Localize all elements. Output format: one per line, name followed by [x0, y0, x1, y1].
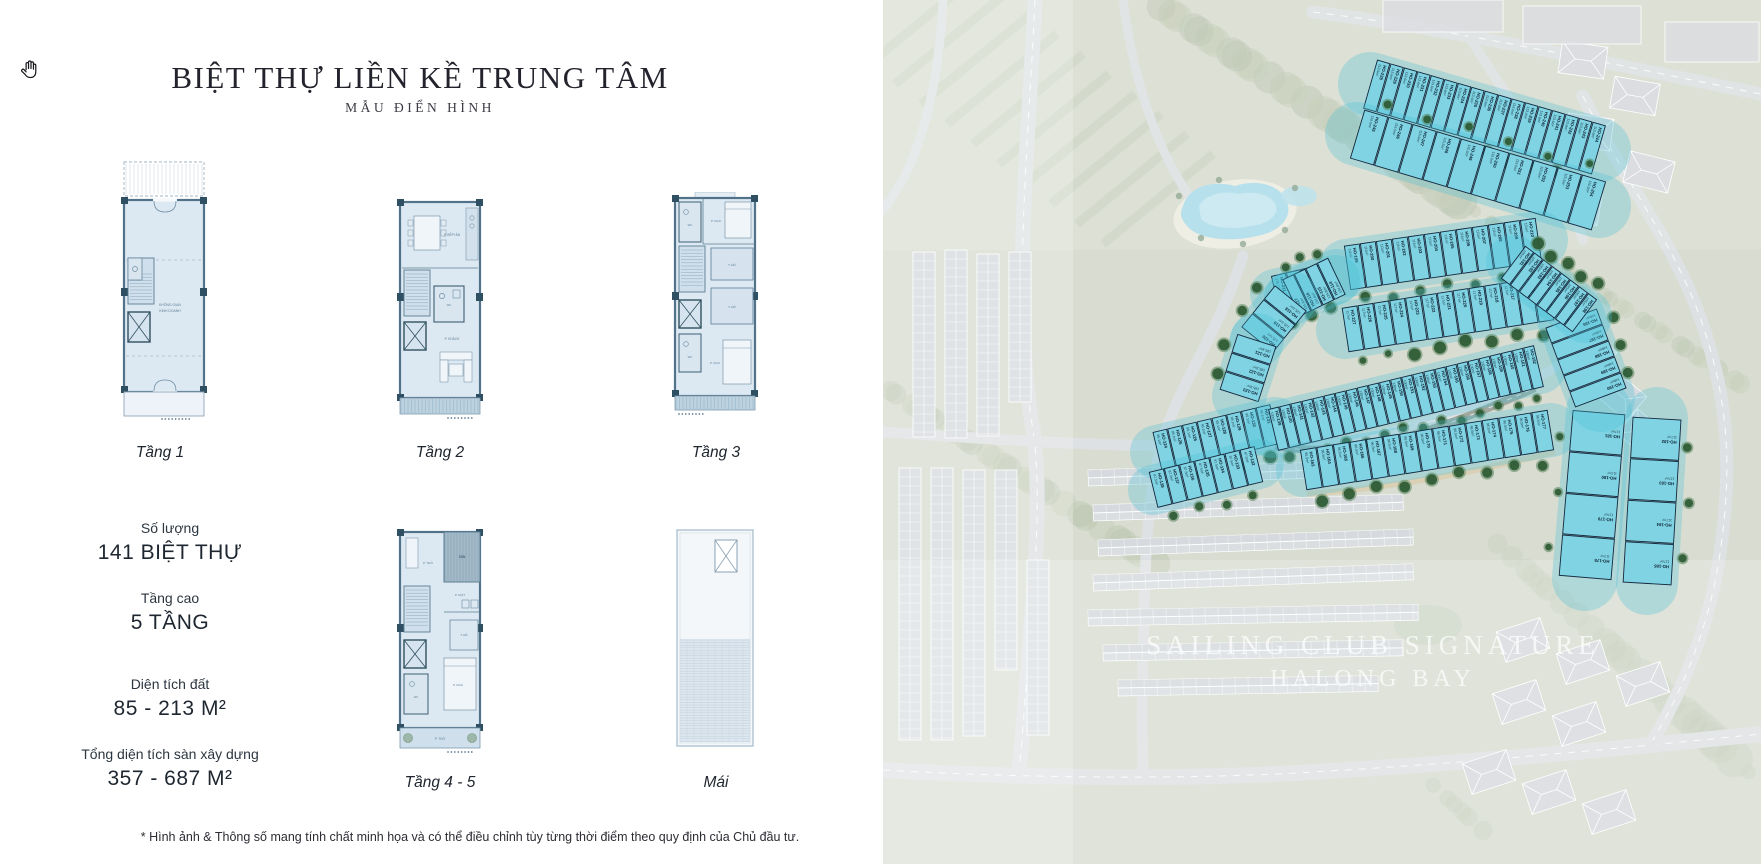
page-subtitle: MẪU ĐIỂN HÌNH — [0, 100, 840, 116]
page-title: BIỆT THỰ LIỀN KỀ TRUNG TÂM — [0, 60, 840, 96]
floor-plan-tang-3: WC P. NGỦ T. ĐỒ T. ĐỒ WC P. NGỦ — [665, 192, 765, 424]
floor-plan-label-tang-1: Tầng 1 — [80, 444, 240, 462]
room-label: P. BẾP+ĂN — [444, 232, 461, 237]
floor-plan-tang-2: P. BẾP+ĂN WC P. KHÁCH — [390, 198, 490, 424]
stat-label: Tầng cao — [0, 590, 340, 606]
stat-label: Số lượng — [0, 520, 340, 536]
map-lot: HO-185117m² — [1623, 542, 1673, 585]
stat-label: Diện tích đất — [0, 676, 340, 692]
stat-label: Tổng diện tích sàn xây dựng — [0, 746, 340, 762]
map-lot: HO-179117m² — [1563, 493, 1618, 538]
svg-text:117m²: 117m² — [1664, 476, 1675, 481]
stat-value: 85 - 213 M² — [0, 697, 340, 721]
svg-text:117m²: 117m² — [1659, 559, 1670, 564]
floor-plan-mai — [665, 524, 765, 762]
svg-text:117m²: 117m² — [1666, 435, 1677, 440]
floor-plan-tang-4-5: SÂN P. THỜ P. GIẶT T. ĐỒ WC P. NGỦ P. TH… — [390, 524, 490, 762]
room-label: P. NGỦ — [710, 360, 720, 365]
watermark-line-1: SAILING CLUB SIGNATURE — [1146, 630, 1600, 660]
floor-plan-tang-1: KHÔNG GIAN KINH DOANH — [114, 160, 214, 452]
map-lot: HO-178117m² — [1559, 535, 1614, 580]
watermark-line-2: HALONG BAY — [1270, 666, 1476, 692]
room-label: P. THỜ — [423, 560, 433, 565]
room-label: WC — [688, 223, 693, 227]
stat-block-quantity: Số lượng 141 BIỆT THỰ — [0, 520, 340, 565]
room-label: WC — [688, 355, 693, 359]
stat-value: 141 BIỆT THỰ — [0, 541, 340, 565]
room-label: T. ĐỒ — [728, 262, 736, 267]
room-label: T. ĐỒ — [728, 304, 736, 309]
floor-plan-label-tang-2: Tầng 2 — [360, 444, 520, 462]
room-label: T. ĐỒ — [460, 632, 468, 637]
floor-plan-label-tang-3: Tầng 3 — [636, 444, 796, 462]
floor-plan-label-mai: Mái — [636, 774, 796, 792]
brochure-page: BIỆT THỰ LIỀN KỀ TRUNG TÂM MẪU ĐIỂN HÌNH… — [0, 0, 1761, 868]
site-map[interactable]: HO-228113.6m²HO-229113.6m²HO-230113.6m²H… — [883, 0, 1761, 868]
stat-value: 357 - 687 M² — [0, 767, 340, 791]
stat-block-floors: Tầng cao 5 TẦNG — [0, 590, 340, 635]
room-label: P. NGỦ — [711, 218, 721, 223]
room-label: P. GIẶT — [455, 593, 465, 597]
room-label: P. KHÁCH — [445, 337, 460, 341]
room-label: P. NGỦ — [453, 682, 463, 687]
map-lot: HO-182117m² — [1631, 417, 1681, 460]
stat-block-gfa: Tổng diện tích sàn xây dựng 357 - 687 M² — [0, 746, 340, 791]
room-label: SÂN — [459, 555, 466, 559]
floor-plan-label-tang-4-5: Tầng 4 - 5 — [360, 774, 520, 792]
room-label: WC — [414, 695, 419, 699]
map-lot: HO-183117m² — [1628, 459, 1678, 502]
svg-text:117m²: 117m² — [1661, 518, 1672, 523]
room-label: P. THỜ — [435, 736, 446, 741]
stat-block-land-area: Diện tích đất 85 - 213 M² — [0, 676, 340, 721]
map-lot: HO-184117m² — [1626, 500, 1676, 543]
stat-value: 5 TẦNG — [0, 611, 340, 635]
room-label: KHÔNG GIAN — [159, 302, 181, 307]
map-lot: HO-180117m² — [1566, 452, 1621, 497]
room-label: WC — [447, 303, 452, 307]
room-label: KINH DOANH — [159, 309, 181, 313]
footnote: * Hình ảnh & Thông số mang tính chất min… — [60, 830, 880, 844]
